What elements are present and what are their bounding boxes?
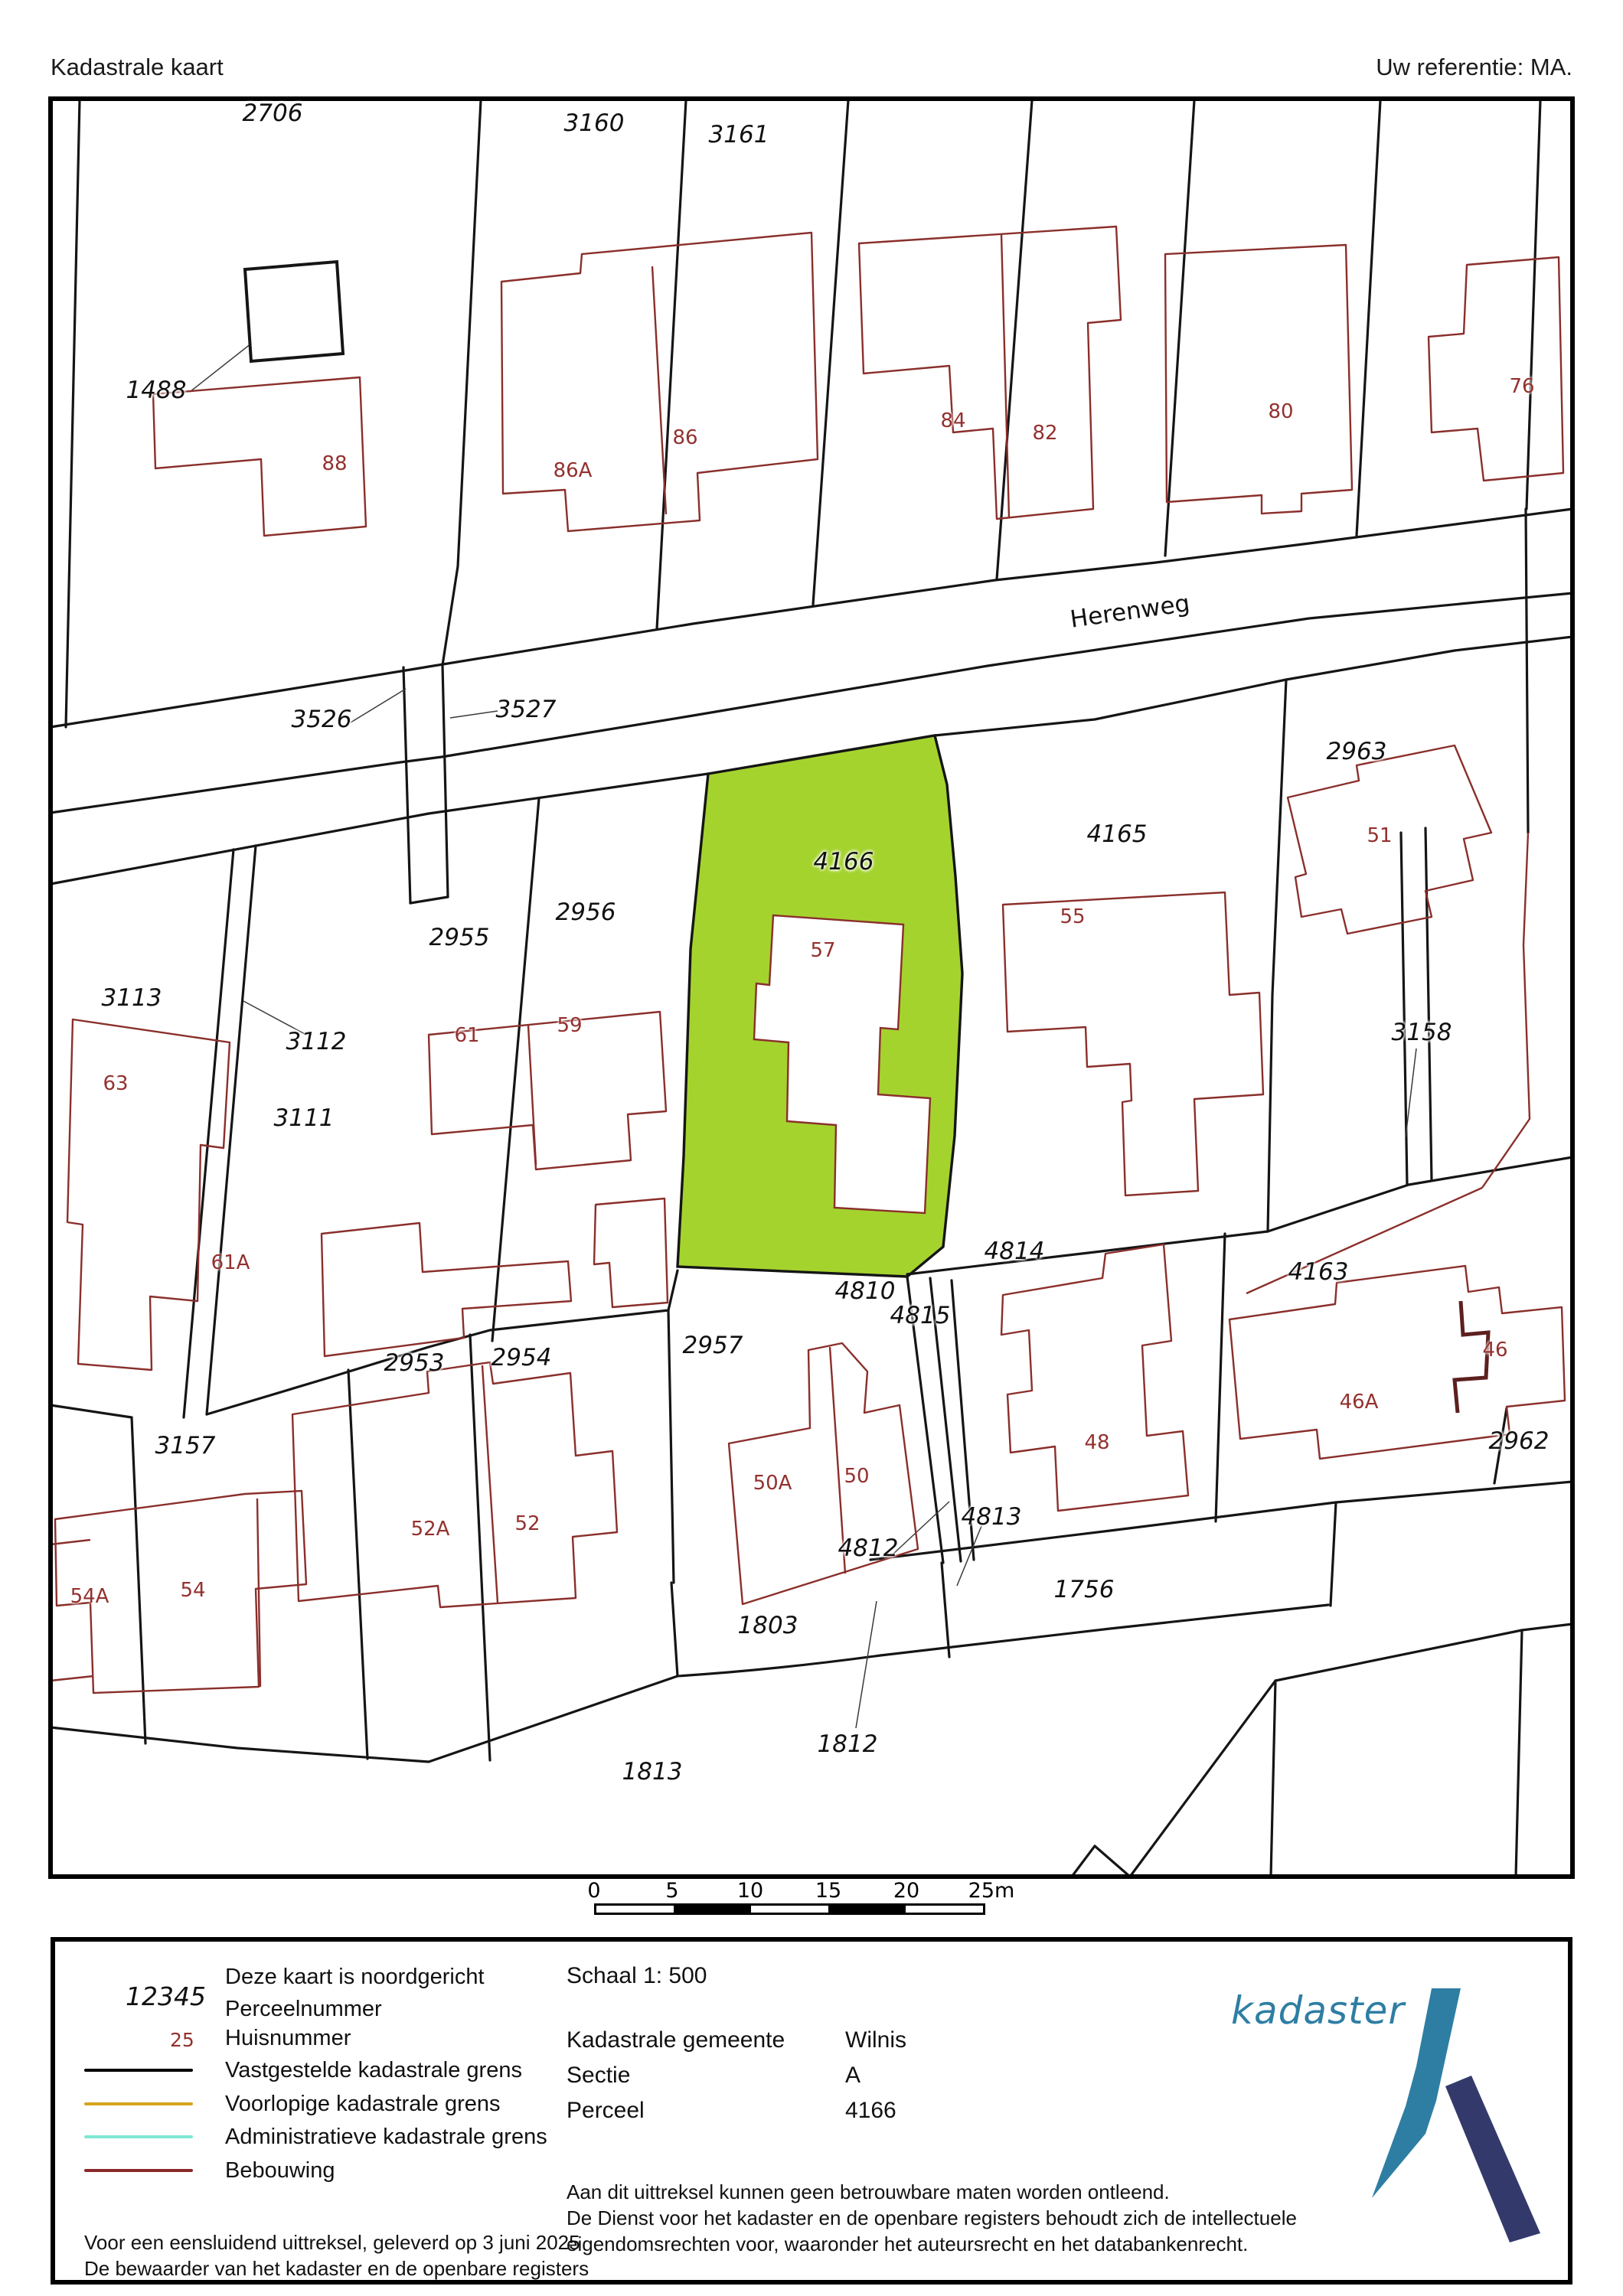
extract-note-line1: Voor een eensluidend uittreksel, gelever… xyxy=(84,2231,580,2255)
scalebar-tick: 20 xyxy=(893,1879,919,1903)
scale-segment xyxy=(751,1906,828,1913)
scale-segment xyxy=(828,1906,906,1913)
legend-label-perceelnummer: Perceelnummer xyxy=(225,1997,382,2022)
scalebar-tick: 0 xyxy=(587,1879,600,1903)
scale-segment xyxy=(906,1906,983,1913)
info-value-gemeente: Wilnis xyxy=(845,2027,906,2053)
legend-sample-huisnummer: 25 xyxy=(170,2029,194,2051)
building-thick-wall xyxy=(1455,1301,1488,1413)
scalebar-tick: 5 xyxy=(665,1879,678,1903)
legend-line-vastgesteld xyxy=(84,2069,193,2072)
kadaster-logo-wordmark: kadaster xyxy=(1231,1988,1405,2033)
info-label-sectie: Sectie xyxy=(567,2063,630,2089)
scalebar-tick: 25m xyxy=(968,1879,1015,1903)
info-value-perceel: 4166 xyxy=(845,2098,896,2124)
scale-text: Schaal 1: 500 xyxy=(567,1963,707,1989)
north-note: Deze kaart is noordgericht xyxy=(225,1965,485,1990)
info-value-sectie: A xyxy=(845,2063,860,2089)
disclaimer-line3: eigendomsrechten voor, waaronder het aut… xyxy=(567,2232,1248,2256)
legend-label-administratief: Administratieve kadastrale grens xyxy=(225,2125,547,2150)
disclaimer-line2: De Dienst voor het kadaster en de openba… xyxy=(567,2206,1297,2230)
scale-segment xyxy=(596,1906,674,1913)
disclaimer-line1: Aan dit uittreksel kunnen geen betrouwba… xyxy=(567,2180,1170,2204)
legend-label-voorlopig: Voorlopige kadastrale grens xyxy=(225,2092,501,2117)
legend-label-vastgesteld: Vastgestelde kadastrale grens xyxy=(225,2058,522,2083)
building-1488 xyxy=(245,262,343,361)
extract-note-line2: De bewaarder van het kadaster en de open… xyxy=(84,2257,589,2281)
legend-line-voorlopig xyxy=(84,2102,193,2105)
info-label-gemeente: Kadastrale gemeente xyxy=(567,2027,785,2053)
scale-bar xyxy=(594,1903,985,1915)
kadastrale-kaart-page: Kadastrale kaart Uw referentie: MA. xyxy=(0,0,1623,2296)
legend-line-administratief xyxy=(84,2135,193,2138)
scalebar-tick: 15 xyxy=(815,1879,841,1903)
scale-segment xyxy=(674,1906,751,1913)
legend-line-bebouwing xyxy=(84,2169,193,2172)
info-label-perceel: Perceel xyxy=(567,2098,645,2124)
legend-label-bebouwing: Bebouwing xyxy=(225,2158,335,2183)
legend-sample-parcelnumber: 12345 xyxy=(126,1981,206,2011)
scalebar-tick: 10 xyxy=(737,1879,763,1903)
legend-label-huisnummer: Huisnummer xyxy=(225,2026,351,2051)
